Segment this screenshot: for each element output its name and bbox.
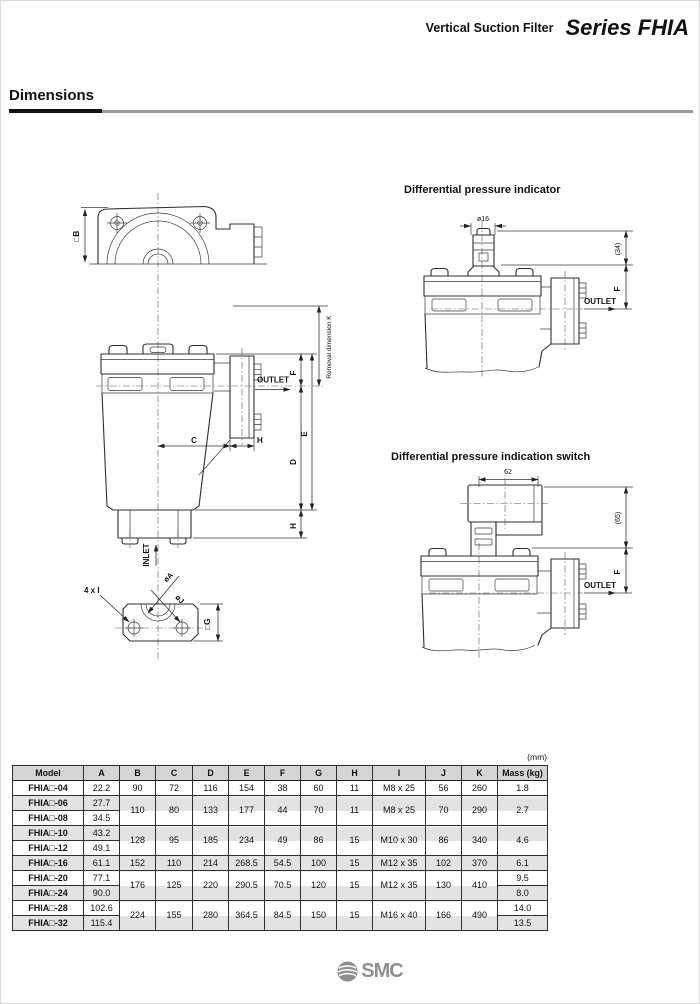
cell-model: FHIA□-08	[13, 811, 84, 826]
table-row: FHIA□-06 27.7 110 80 133 177 44 70 11 M8…	[13, 796, 548, 811]
cell: 176	[120, 871, 156, 901]
cell: 44	[265, 796, 301, 826]
cell: 9.5	[498, 871, 548, 886]
cell: 61.1	[84, 856, 120, 871]
col-header-f: F	[265, 766, 301, 781]
cell: 125	[156, 871, 193, 901]
cell: 8.0	[498, 886, 548, 901]
cell: 224	[120, 901, 156, 931]
inlet-label: INLET	[142, 543, 151, 566]
cell: 185	[193, 826, 229, 856]
cell: 86	[301, 826, 337, 856]
cell: 27.7	[84, 796, 120, 811]
cell: 11	[337, 796, 373, 826]
cell: 120	[301, 871, 337, 901]
cell: 84.5	[265, 901, 301, 931]
cell: 77.1	[84, 871, 120, 886]
cell: 370	[462, 856, 498, 871]
cell: 70	[301, 796, 337, 826]
cell: M12 x 35	[373, 871, 426, 901]
dim-65-label: (65)	[615, 512, 622, 524]
dim-label-c: C	[191, 436, 197, 445]
cell: 15	[337, 826, 373, 856]
cell: 150	[301, 901, 337, 931]
cell: 214	[193, 856, 229, 871]
smc-globe-icon	[337, 961, 358, 982]
indicator-dim-f-label: F	[613, 286, 622, 291]
cell: 130	[426, 871, 462, 901]
dim-34-label: (34)	[615, 243, 622, 255]
cell: 220	[193, 871, 229, 901]
cell: 364.5	[229, 901, 265, 931]
cell: 6.1	[498, 856, 548, 871]
cell: 110	[156, 856, 193, 871]
cell-model: FHIA□-12	[13, 841, 84, 856]
cell: 15	[337, 871, 373, 901]
switch-drawing: Differential pressure indication switch …	[391, 451, 633, 659]
dia-a-label: øA	[162, 570, 176, 584]
cell: 60	[301, 781, 337, 796]
switch-dim-f-label: F	[613, 569, 622, 574]
dimension-drawings: □B OUTLET	[1, 131, 700, 751]
cell-model: FHIA□-04	[13, 781, 84, 796]
table-row: FHIA□-28 102.6 224 155 280 364.5 84.5 15…	[13, 901, 548, 916]
cell: 102.6	[84, 901, 120, 916]
col-header-b: B	[120, 766, 156, 781]
cell-model: FHIA□-24	[13, 886, 84, 901]
cell: 340	[462, 826, 498, 856]
indicator-title: Differential pressure indicator	[404, 184, 561, 196]
col-header-i: I	[373, 766, 426, 781]
cell: 110	[120, 796, 156, 826]
table-row: FHIA□-20 77.1 176 125 220 290.5 70.5 120…	[13, 871, 548, 886]
unit-note: (mm)	[12, 752, 547, 762]
cell: M8 x 25	[373, 781, 426, 796]
dim-label-g: □G	[203, 618, 212, 629]
cell: 49.1	[84, 841, 120, 856]
smc-logo-text: SMC	[361, 960, 402, 983]
cell: 11	[337, 781, 373, 796]
cell: 234	[229, 826, 265, 856]
cell: 34.5	[84, 811, 120, 826]
dimension-table: Model A B C D E F G H I J K Mass (kg) FH…	[12, 765, 548, 931]
dim-label-d: D	[289, 459, 298, 465]
product-title: Vertical Suction Filter	[426, 21, 554, 35]
col-header-g: G	[301, 766, 337, 781]
cell: 70	[426, 796, 462, 826]
cell: 410	[462, 871, 498, 901]
cell-model: FHIA□-10	[13, 826, 84, 841]
table-header-row: Model A B C D E F G H I J K Mass (kg)	[13, 766, 548, 781]
cell: 155	[156, 901, 193, 931]
cell: 268.5	[229, 856, 265, 871]
cell-model: FHIA□-28	[13, 901, 84, 916]
cell-model: FHIA□-32	[13, 916, 84, 931]
col-header-d: D	[193, 766, 229, 781]
section-title: Dimensions	[9, 87, 94, 104]
cell: 54.5	[265, 856, 301, 871]
col-header-h: H	[337, 766, 373, 781]
rule-gray-segment	[102, 110, 693, 113]
smc-logo: SMC	[337, 960, 402, 983]
indicator-outlet-label: OUTLET	[584, 297, 616, 306]
cell: 90	[120, 781, 156, 796]
cell: 43.2	[84, 826, 120, 841]
cell: 49	[265, 826, 301, 856]
cell: 38	[265, 781, 301, 796]
cell: 80	[156, 796, 193, 826]
cell: 95	[156, 826, 193, 856]
top-view-drawing: □B	[72, 207, 267, 265]
cell: 290.5	[229, 871, 265, 901]
dim-label-h-bottom: H	[289, 523, 298, 529]
bolt-count-label: 4 x I	[84, 586, 100, 595]
cell: 90.0	[84, 886, 120, 901]
cell: 102	[426, 856, 462, 871]
table-row: FHIA□-04 22.2 90 72 116 154 38 60 11 M8 …	[13, 781, 548, 796]
cell: M16 x 40	[373, 901, 426, 931]
bottom-view-drawing: 4 x I øA øJ □G	[84, 570, 223, 641]
cell: 177	[229, 796, 265, 826]
cell: M12 x 35	[373, 856, 426, 871]
series-title: Series FHIA	[566, 15, 690, 41]
cell: 133	[193, 796, 229, 826]
table-row: FHIA□-10 43.2 128 95 185 234 49 86 15 M1…	[13, 826, 548, 841]
cell: 14.0	[498, 901, 548, 916]
cell: 116	[193, 781, 229, 796]
cell: 13.5	[498, 916, 548, 931]
cell: 15	[337, 901, 373, 931]
cell: 260	[462, 781, 498, 796]
dim-label-h-side: H	[257, 436, 263, 445]
cell: 100	[301, 856, 337, 871]
cell: 115.4	[84, 916, 120, 931]
dia-16-label: ø16	[477, 216, 489, 223]
cell: 166	[426, 901, 462, 931]
col-header-model: Model	[13, 766, 84, 781]
cell: 490	[462, 901, 498, 931]
col-header-j: J	[426, 766, 462, 781]
col-header-k: K	[462, 766, 498, 781]
page-header: Vertical Suction Filter Series FHIA	[426, 15, 689, 41]
col-header-mass: Mass (kg)	[498, 766, 548, 781]
rule-black-segment	[9, 109, 102, 113]
cell: 86	[426, 826, 462, 856]
dim-label-f: F	[289, 370, 298, 375]
cell: 1.8	[498, 781, 548, 796]
cell: 70.5	[265, 871, 301, 901]
cell: M8 x 25	[373, 796, 426, 826]
cell-model: FHIA□-06	[13, 796, 84, 811]
cell-model: FHIA□-20	[13, 871, 84, 886]
cell: 152	[120, 856, 156, 871]
cell: M10 x 30	[373, 826, 426, 856]
cell: 15	[337, 856, 373, 871]
catalog-page: Vertical Suction Filter Series FHIA Dime…	[0, 0, 700, 1004]
col-header-a: A	[84, 766, 120, 781]
outlet-label: OUTLET	[257, 376, 289, 385]
switch-outlet-label: OUTLET	[584, 581, 616, 590]
cell: 280	[193, 901, 229, 931]
cell: 22.2	[84, 781, 120, 796]
front-view-drawing: OUTLET C H Removal dimension K F E D H I	[96, 306, 333, 567]
col-header-c: C	[156, 766, 193, 781]
cell: 128	[120, 826, 156, 856]
cell: 290	[462, 796, 498, 826]
cell: 56	[426, 781, 462, 796]
section-rule	[9, 109, 693, 113]
switch-title: Differential pressure indication switch	[391, 451, 591, 463]
table-row: FHIA□-16 61.1 152 110 214 268.5 54.5 100…	[13, 856, 548, 871]
cell: 72	[156, 781, 193, 796]
dim-label-b: □B	[72, 230, 81, 241]
page-footer: SMC	[1, 960, 700, 983]
cell-model: FHIA□-16	[13, 856, 84, 871]
cell: 2.7	[498, 796, 548, 826]
cell: 154	[229, 781, 265, 796]
cell: 4.6	[498, 826, 548, 856]
removal-dimension-label: Removal dimension K	[326, 315, 333, 379]
dim-62-label: 62	[504, 469, 512, 476]
col-header-e: E	[229, 766, 265, 781]
indicator-drawing: Differential pressure indicator ø16	[404, 184, 633, 379]
